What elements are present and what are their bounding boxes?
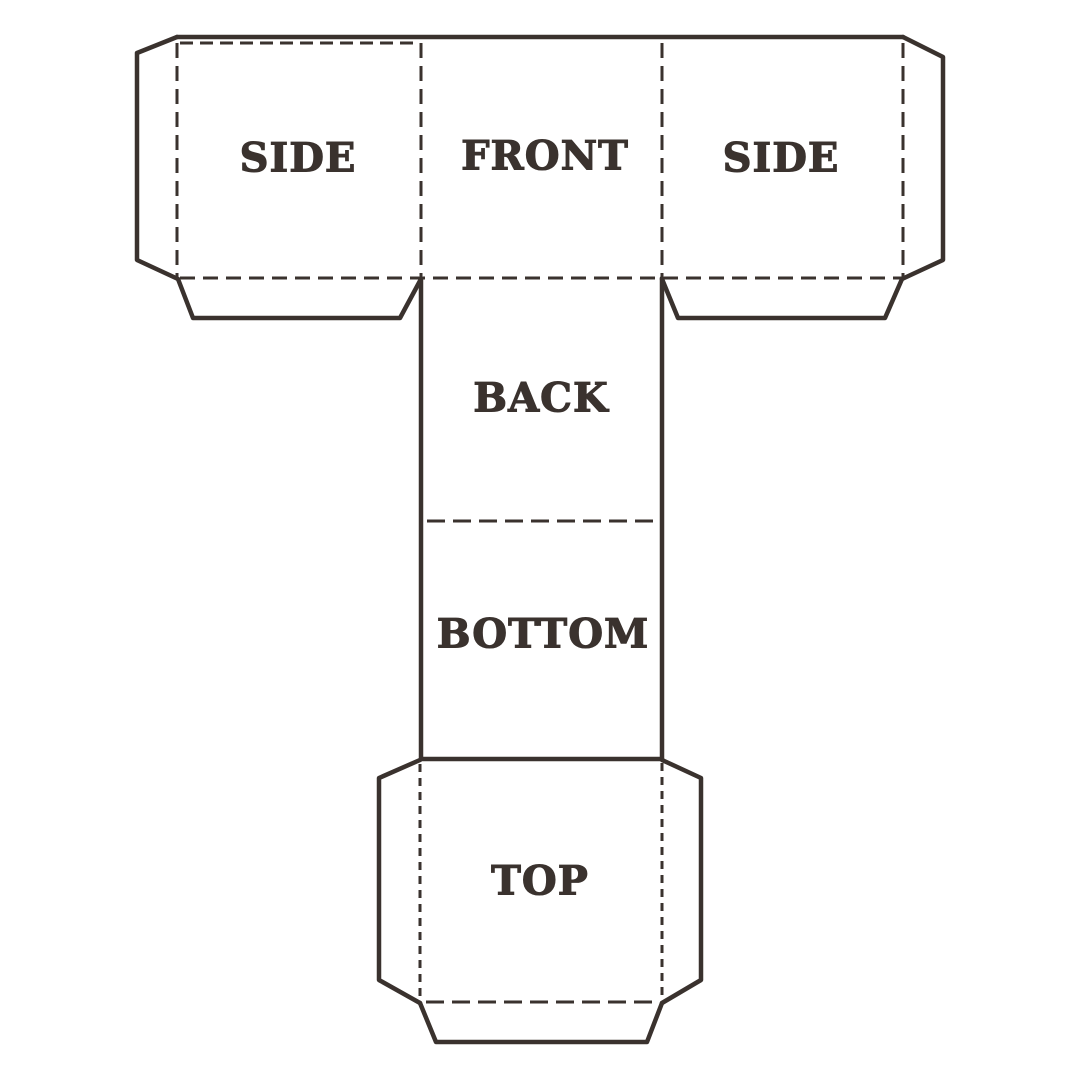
box-template-canvas: SIDE FRONT SIDE BACK BOTTOM TOP <box>0 0 1080 1080</box>
panel-label-side-right: SIDE <box>723 135 840 182</box>
panel-label-bottom: BOTTOM <box>437 611 650 658</box>
top-right-glue-flap-cut <box>662 760 701 1003</box>
right-glue-flap-cut <box>902 37 943 279</box>
panel-label-top: TOP <box>491 858 589 905</box>
right-side-tuck-flap-cut <box>662 279 902 318</box>
panel-label-back: BACK <box>473 375 608 422</box>
top-left-glue-flap-cut <box>379 760 420 1003</box>
top-bottom-tuck-flap-cut <box>420 1003 662 1042</box>
left-side-tuck-flap-cut <box>178 279 421 318</box>
panel-label-side-left: SIDE <box>240 135 357 182</box>
left-glue-flap-cut <box>137 37 178 279</box>
panel-label-front: FRONT <box>461 133 629 180</box>
